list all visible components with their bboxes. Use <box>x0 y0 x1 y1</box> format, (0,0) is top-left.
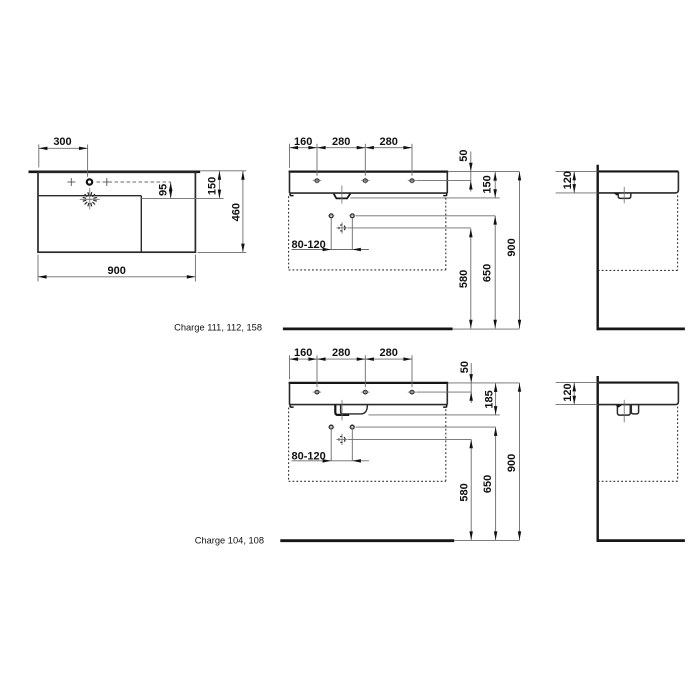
svg-text:580: 580 <box>458 270 470 288</box>
svg-text:280: 280 <box>332 136 350 148</box>
svg-text:280: 280 <box>380 347 398 359</box>
svg-text:280: 280 <box>380 136 398 148</box>
svg-text:160: 160 <box>294 136 312 148</box>
svg-text:900: 900 <box>506 238 518 256</box>
svg-text:80-120: 80-120 <box>292 239 326 251</box>
svg-text:900: 900 <box>506 454 518 472</box>
svg-text:160: 160 <box>294 347 312 359</box>
svg-text:185: 185 <box>483 390 495 408</box>
svg-text:300: 300 <box>53 136 71 148</box>
svg-text:280: 280 <box>332 347 350 359</box>
svg-text:80-120: 80-120 <box>292 450 326 462</box>
svg-text:Charge 104, 108: Charge 104, 108 <box>195 536 264 546</box>
svg-text:120: 120 <box>562 171 574 189</box>
svg-text:900: 900 <box>108 265 126 277</box>
svg-text:650: 650 <box>482 475 494 493</box>
svg-text:650: 650 <box>482 264 494 282</box>
svg-text:150: 150 <box>482 175 494 193</box>
svg-text:150: 150 <box>207 177 219 195</box>
svg-text:95: 95 <box>158 184 170 196</box>
svg-text:Charge 111, 112, 158: Charge 111, 112, 158 <box>174 322 262 332</box>
svg-text:50: 50 <box>459 361 471 373</box>
svg-text:580: 580 <box>459 483 471 501</box>
svg-text:50: 50 <box>458 149 470 161</box>
svg-text:460: 460 <box>231 203 243 221</box>
svg-text:120: 120 <box>562 383 574 401</box>
